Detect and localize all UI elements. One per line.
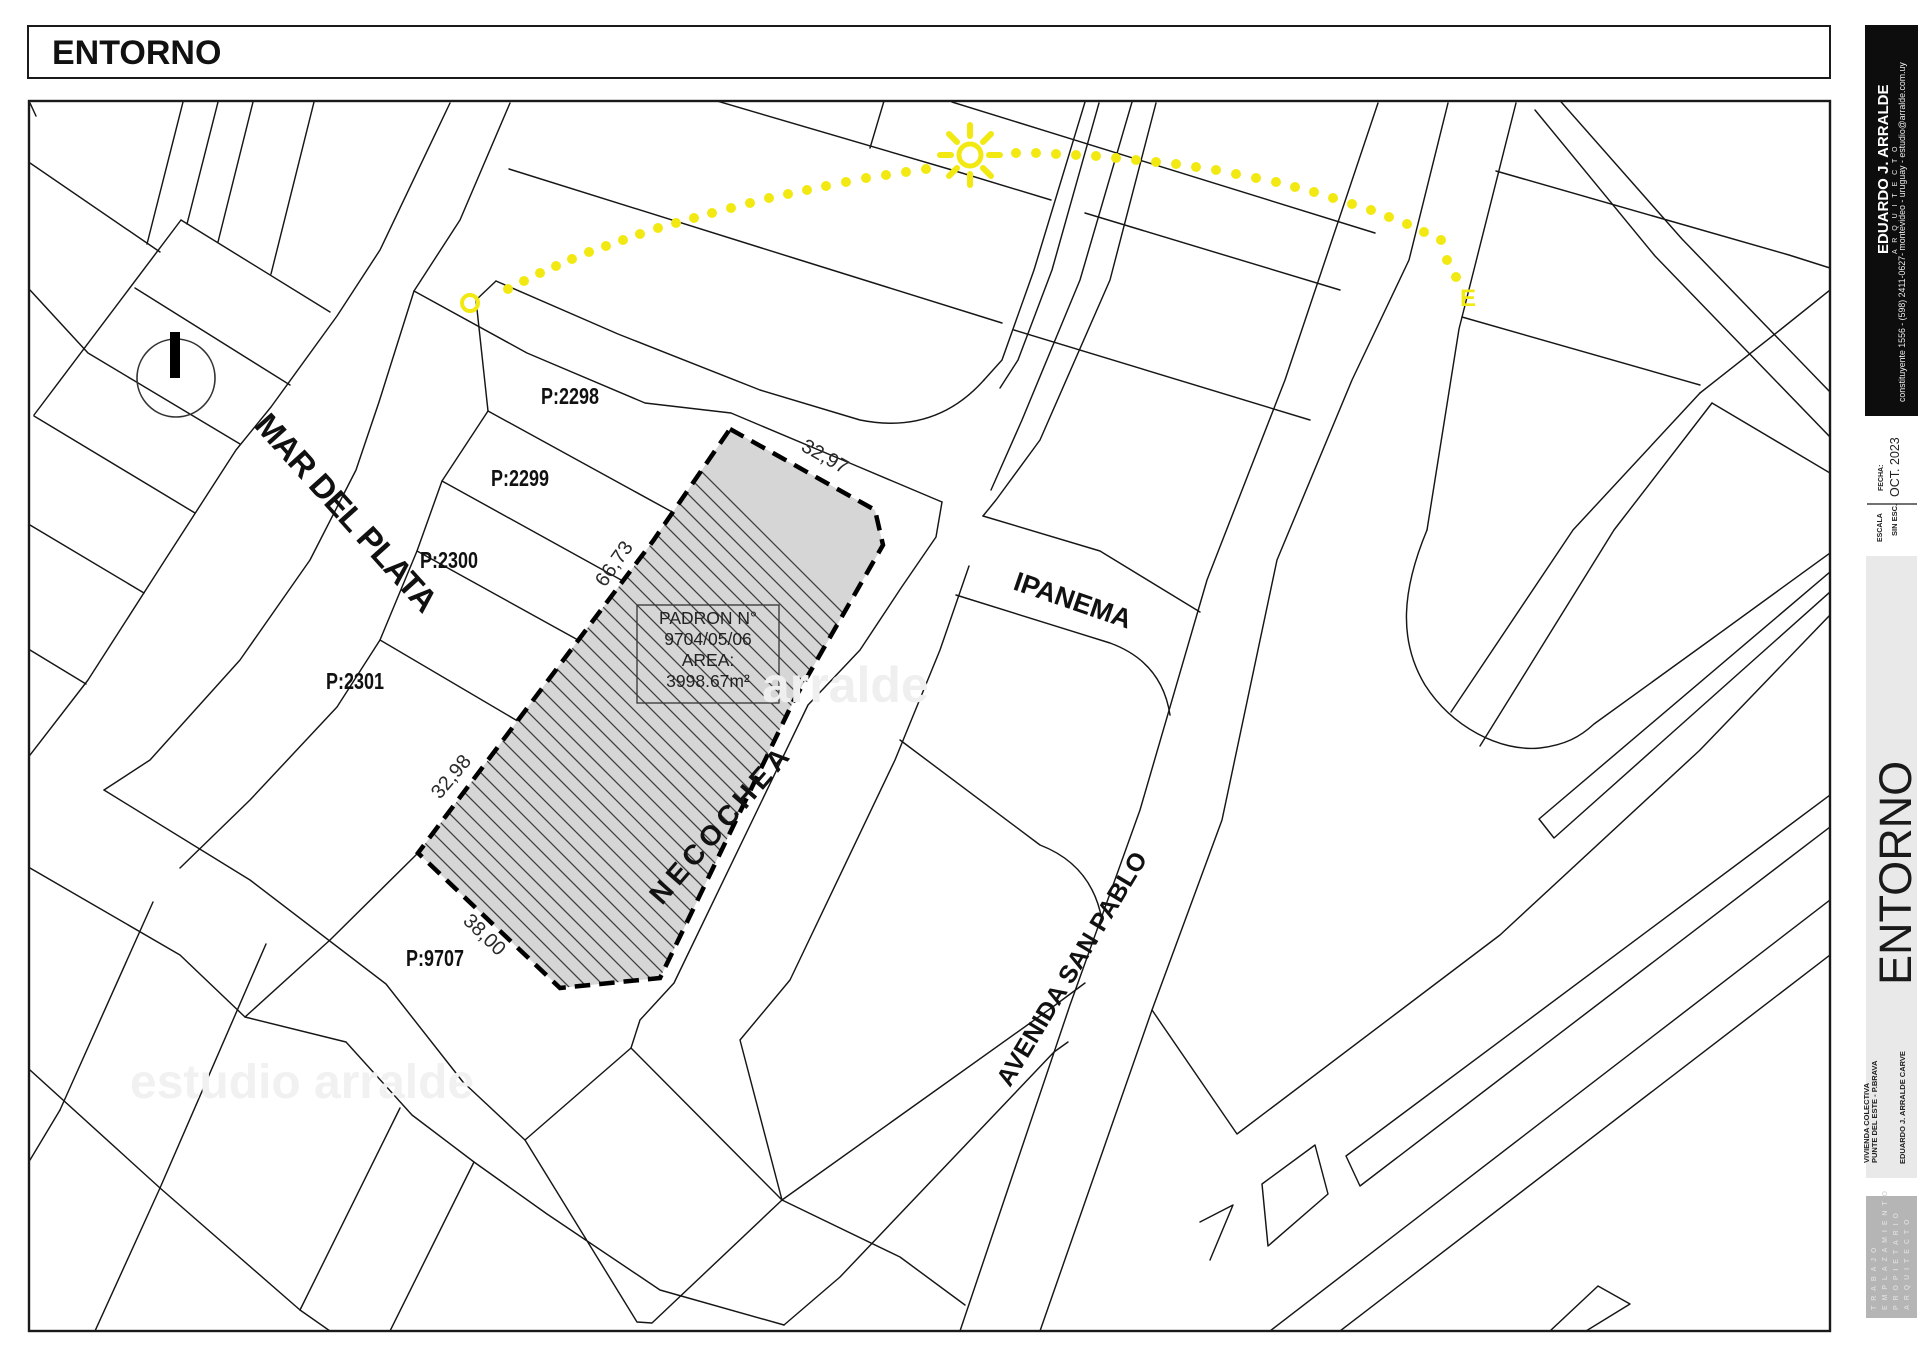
svg-text:AREA:: AREA: [682,650,735,670]
svg-text:A R Q U I T E C T O: A R Q U I T E C T O [1904,1218,1911,1310]
svg-text:9704/05/06: 9704/05/06 [664,629,752,649]
svg-text:T R A B A J O: T R A B A J O [1871,1246,1878,1310]
svg-text:OCT. 2023: OCT. 2023 [1888,437,1902,497]
svg-text:ESCALA: ESCALA [1877,513,1884,542]
svg-text:P R O P I E T A R I O: P R O P I E T A R I O [1893,1212,1900,1310]
svg-text:FECHA:: FECHA: [1878,465,1885,491]
svg-text:E: E [1460,285,1476,312]
svg-text:3998.67m²: 3998.67m² [666,671,750,691]
svg-text:P:2299: P:2299 [491,465,549,491]
svg-text:estudio arralde: estudio arralde [130,1056,474,1109]
svg-text:ENTORNO: ENTORNO [1870,761,1920,985]
svg-text:constituyente 1556 - (598) 241: constituyente 1556 - (598) 2411-0627- mo… [1897,62,1907,402]
svg-text:E M P L A Z A M I E N T O: E M P L A Z A M I E N T O [1882,1189,1889,1310]
svg-text:PADRON N°: PADRON N° [659,608,757,628]
svg-text:P:2301: P:2301 [326,668,384,694]
svg-text:P:2298: P:2298 [541,383,599,409]
svg-text:SIN ESC.: SIN ESC. [1890,504,1899,536]
svg-text:P:9707: P:9707 [406,945,464,971]
svg-text:ENTORNO: ENTORNO [52,34,221,72]
svg-text:EDUARDO J. ARRALDE: EDUARDO J. ARRALDE [1875,85,1892,254]
svg-text:EDUARDO J. ARRALDE CARVE: EDUARDO J. ARRALDE CARVE [1898,1051,1907,1164]
svg-text:arralde: arralde [762,657,929,713]
svg-text:PUNTE DEL ESTE - P.BRAVA: PUNTE DEL ESTE - P.BRAVA [1870,1060,1879,1163]
svg-text:P:2300: P:2300 [420,547,478,573]
